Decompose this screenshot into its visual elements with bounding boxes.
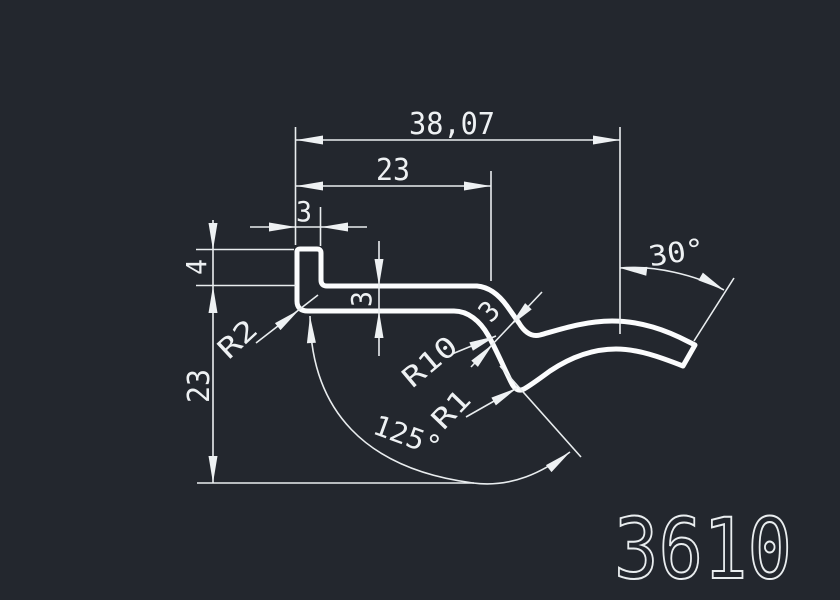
- dim-valley-radius: R1: [425, 383, 520, 436]
- arrowhead: [464, 182, 491, 191]
- dim-corner-radius: R2: [211, 295, 318, 365]
- dim-label-overall-width: 38,07: [409, 107, 495, 142]
- arrowhead: [321, 223, 348, 232]
- arrowhead: [593, 136, 620, 145]
- arrowhead: [296, 136, 323, 145]
- arrowhead: [269, 223, 296, 232]
- arrowhead: [209, 286, 218, 313]
- cad-drawing-canvas: 38,07 23 3 4 23 3 R2 R10: [0, 0, 840, 600]
- arrowhead: [209, 456, 218, 483]
- part-number-label: 3610: [614, 500, 792, 598]
- arrowhead: [619, 264, 647, 276]
- arrowhead: [306, 316, 316, 343]
- dim-upper-width: 23: [296, 153, 492, 191]
- arrowhead: [296, 182, 323, 191]
- dim-overall-width: 38,07: [296, 107, 621, 145]
- arrowhead: [209, 223, 218, 250]
- dim-label-strip-thickness: 3: [345, 291, 378, 307]
- extension-lines: [196, 127, 734, 483]
- dim-label-upper-width: 23: [376, 153, 410, 188]
- ext-line-end-face: [694, 278, 734, 341]
- dim-label-lip-height: 4: [180, 259, 213, 275]
- dim-left-vertical: 4 23: [180, 220, 218, 483]
- dim-strip-thickness: 3: [345, 241, 384, 356]
- dim-label-corner-radius: R2: [211, 313, 264, 366]
- dim-lip-width: 3: [250, 195, 367, 232]
- dim-bend-radius: R10: [396, 329, 498, 394]
- dim-label-end-angle: 30°: [646, 232, 706, 273]
- arrowhead: [375, 259, 384, 286]
- arrowhead: [375, 311, 384, 338]
- dim-label-profile-height: 23: [182, 369, 217, 403]
- arrowhead: [698, 273, 726, 294]
- dim-label-lip-width: 3: [296, 195, 312, 228]
- dim-end-angle: 30°: [619, 232, 726, 294]
